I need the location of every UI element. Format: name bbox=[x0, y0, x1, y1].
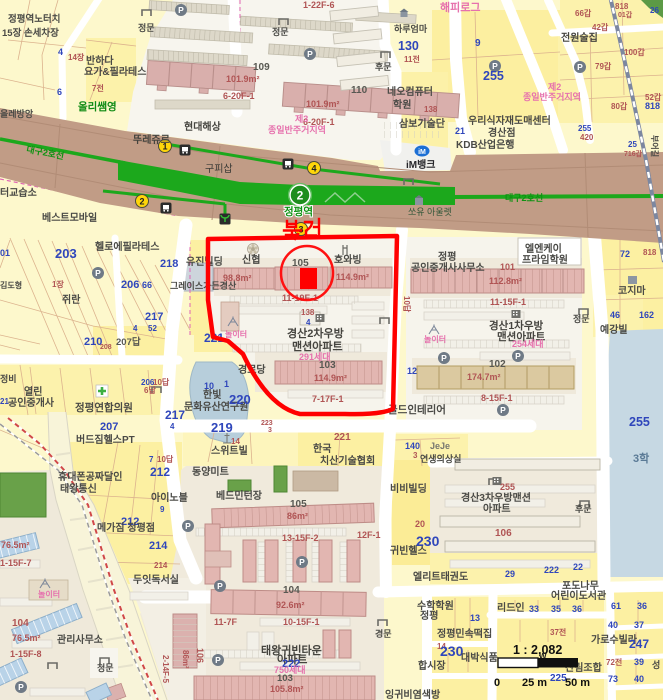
svg-text:20: 20 bbox=[415, 519, 425, 529]
svg-text:223: 223 bbox=[261, 420, 273, 427]
svg-text:214: 214 bbox=[149, 540, 168, 552]
svg-text:86m²: 86m² bbox=[287, 511, 308, 521]
svg-text:218: 218 bbox=[160, 258, 178, 270]
svg-text:105.8m²: 105.8m² bbox=[270, 684, 304, 694]
svg-text:4: 4 bbox=[133, 324, 138, 333]
svg-text:10답: 10답 bbox=[402, 296, 412, 313]
svg-text:관리사무소: 관리사무소 bbox=[57, 633, 103, 646]
svg-text:9: 9 bbox=[475, 38, 481, 49]
svg-text:01: 01 bbox=[0, 248, 10, 258]
svg-text:101: 101 bbox=[500, 262, 515, 272]
svg-text:130: 130 bbox=[398, 39, 419, 53]
svg-text:제3: 제3 bbox=[295, 113, 308, 124]
svg-text:호와빙: 호와빙 bbox=[334, 253, 362, 266]
svg-text:138: 138 bbox=[301, 308, 315, 317]
svg-text:207답: 207답 bbox=[116, 336, 141, 348]
svg-text:iM: iM bbox=[418, 149, 426, 156]
svg-text:207: 207 bbox=[100, 421, 118, 433]
svg-text:10답: 10답 bbox=[157, 454, 174, 464]
svg-text:올레방앙: 올레방앙 bbox=[0, 108, 34, 119]
svg-text:76.5m²: 76.5m² bbox=[12, 633, 41, 643]
svg-text:유진빌딩: 유진빌딩 bbox=[186, 255, 223, 268]
svg-text:174.7m²: 174.7m² bbox=[467, 372, 501, 382]
svg-text:2: 2 bbox=[297, 189, 304, 203]
svg-text:베드민턴장: 베드민턴장 bbox=[216, 489, 263, 502]
svg-text:6: 6 bbox=[57, 87, 62, 97]
svg-text:치산기술협회: 치산기술협회 bbox=[320, 454, 375, 467]
svg-text:2: 2 bbox=[139, 197, 144, 207]
svg-text:26: 26 bbox=[650, 6, 659, 15]
svg-text:102: 102 bbox=[489, 359, 506, 370]
svg-text:종일반주거지역: 종일반주거지역 bbox=[268, 124, 326, 135]
svg-text:하루엄마: 하루엄마 bbox=[394, 23, 428, 34]
svg-text:후문: 후문 bbox=[375, 61, 392, 72]
svg-text:연생의상실: 연생의상실 bbox=[420, 453, 461, 464]
svg-text:P: P bbox=[217, 581, 223, 591]
svg-text:잉귀비염색방: 잉귀비염색방 bbox=[385, 688, 441, 700]
svg-text:쥐란: 쥐란 bbox=[62, 293, 81, 306]
svg-text:214: 214 bbox=[154, 561, 168, 570]
svg-text:한빛: 한빛 bbox=[203, 388, 221, 401]
svg-text:109: 109 bbox=[253, 62, 270, 73]
svg-text:106: 106 bbox=[495, 528, 512, 539]
svg-text:103: 103 bbox=[319, 360, 336, 371]
svg-text:P: P bbox=[577, 62, 583, 72]
svg-text:P: P bbox=[307, 49, 313, 59]
svg-text:140: 140 bbox=[405, 441, 420, 451]
svg-text:1-15F-8: 1-15F-8 bbox=[10, 649, 42, 659]
svg-text:100갑: 100갑 bbox=[624, 47, 645, 57]
svg-text:217: 217 bbox=[165, 408, 185, 422]
svg-text:254세대: 254세대 bbox=[512, 338, 544, 349]
svg-text:818: 818 bbox=[615, 2, 629, 11]
svg-text:베스트모바일: 베스트모바일 bbox=[42, 211, 97, 224]
svg-text:21: 21 bbox=[455, 126, 465, 136]
svg-text:경산점: 경산점 bbox=[488, 126, 516, 139]
svg-text:비비빌딩: 비비빌딩 bbox=[390, 482, 427, 495]
svg-text:33: 33 bbox=[529, 604, 539, 614]
svg-text:정평민속떡집: 정평민속떡집 bbox=[437, 627, 492, 640]
svg-text:어린이도서관: 어린이도서관 bbox=[551, 589, 607, 602]
svg-text:101.9m²: 101.9m² bbox=[306, 99, 340, 109]
svg-text:222: 222 bbox=[544, 565, 559, 575]
svg-text:예강빌: 예강빌 bbox=[600, 323, 628, 336]
svg-text:221: 221 bbox=[334, 432, 351, 443]
svg-text:제2: 제2 bbox=[548, 81, 561, 92]
svg-text:29: 29 bbox=[505, 569, 515, 579]
svg-text:쏘유 아울렛: 쏘유 아울렛 bbox=[408, 207, 452, 217]
svg-text:818: 818 bbox=[645, 101, 660, 111]
svg-text:39: 39 bbox=[634, 657, 644, 667]
svg-text:112.8m²: 112.8m² bbox=[489, 276, 522, 286]
svg-text:420: 420 bbox=[580, 133, 594, 142]
svg-text:휴대폰공짜달인: 휴대폰공짜달인 bbox=[58, 470, 122, 483]
svg-text:현대해상: 현대해상 bbox=[184, 120, 222, 133]
svg-text:3: 3 bbox=[268, 427, 272, 434]
svg-text:14: 14 bbox=[231, 437, 240, 446]
svg-text:터교습소: 터교습소 bbox=[0, 186, 37, 199]
svg-text:1-22F-6: 1-22F-6 bbox=[303, 0, 335, 10]
svg-text:해피로그: 해피로그 bbox=[440, 0, 480, 14]
svg-text:13-15F-2: 13-15F-2 bbox=[282, 533, 319, 543]
svg-text:프라임학원: 프라임학원 bbox=[522, 253, 568, 266]
svg-text:73: 73 bbox=[608, 674, 618, 684]
svg-text:6-20F-1: 6-20F-1 bbox=[223, 91, 255, 101]
svg-text:청문: 청문 bbox=[97, 662, 114, 673]
svg-text:716갑: 716갑 bbox=[624, 149, 643, 158]
svg-text:전원술집: 전원술집 bbox=[561, 31, 598, 44]
svg-text:208: 208 bbox=[100, 344, 112, 351]
svg-text:14장: 14장 bbox=[68, 52, 85, 62]
svg-text:P: P bbox=[441, 353, 447, 363]
svg-text:P: P bbox=[95, 268, 101, 278]
svg-text:46: 46 bbox=[610, 310, 620, 320]
svg-text:11-15F-1: 11-15F-1 bbox=[490, 297, 526, 307]
svg-text:138: 138 bbox=[424, 105, 438, 114]
svg-text:헬로에필라테스: 헬로에필라테스 bbox=[95, 240, 159, 253]
svg-text:818: 818 bbox=[643, 248, 657, 257]
svg-text:11-7F: 11-7F bbox=[214, 617, 238, 627]
svg-text:P: P bbox=[500, 405, 506, 415]
svg-text:247: 247 bbox=[629, 637, 649, 651]
svg-text:11전: 11전 bbox=[404, 54, 420, 64]
svg-text:12F-1: 12F-1 bbox=[357, 530, 381, 540]
svg-text:열린: 열린 bbox=[24, 385, 42, 398]
svg-text:P: P bbox=[185, 521, 191, 531]
svg-text:P: P bbox=[215, 655, 221, 665]
svg-text:76.5m²: 76.5m² bbox=[1, 540, 30, 550]
svg-text:정평: 정평 bbox=[438, 250, 456, 263]
svg-text:신협: 신협 bbox=[242, 253, 260, 266]
svg-text:4: 4 bbox=[306, 318, 311, 327]
svg-text:255: 255 bbox=[483, 69, 504, 83]
svg-text:42갑: 42갑 bbox=[592, 22, 609, 32]
svg-text:21: 21 bbox=[0, 397, 9, 406]
svg-text:1 : 2,082: 1 : 2,082 bbox=[513, 643, 562, 657]
svg-text:골드인테리어: 골드인테리어 bbox=[388, 403, 446, 416]
svg-text:72: 72 bbox=[620, 249, 630, 259]
svg-text:P: P bbox=[299, 557, 305, 567]
svg-text:정평: 정평 bbox=[420, 609, 438, 622]
svg-text:요가&필라테스: 요가&필라테스 bbox=[84, 65, 146, 78]
svg-text:리드인: 리드인 bbox=[497, 601, 525, 614]
svg-text:태왕통신: 태왕통신 bbox=[60, 482, 97, 495]
svg-text:114.9m²: 114.9m² bbox=[314, 373, 347, 383]
svg-text:61: 61 bbox=[611, 601, 621, 611]
svg-text:엘리트태권도: 엘리트태권도 bbox=[413, 570, 468, 583]
svg-text:52: 52 bbox=[148, 324, 157, 333]
svg-text:학원: 학원 bbox=[393, 98, 411, 111]
svg-text:한국: 한국 bbox=[313, 443, 331, 455]
svg-text:104: 104 bbox=[12, 618, 29, 629]
svg-text:98.8m²: 98.8m² bbox=[223, 273, 252, 283]
svg-text:114.9m²: 114.9m² bbox=[336, 272, 369, 282]
svg-text:정평연합의원: 정평연합의원 bbox=[75, 401, 133, 414]
svg-text:7전: 7전 bbox=[92, 83, 104, 93]
svg-text:106: 106 bbox=[195, 648, 205, 663]
svg-text:37: 37 bbox=[634, 620, 644, 630]
svg-text:공인중개사: 공인중개사 bbox=[8, 396, 55, 409]
svg-text:105: 105 bbox=[290, 499, 307, 510]
svg-text:메가짐 정평점: 메가짐 정평점 bbox=[97, 521, 155, 534]
svg-text:P: P bbox=[18, 682, 24, 692]
svg-text:공인중개사사무소: 공인중개사사무소 bbox=[411, 261, 485, 274]
svg-text:대구2호선: 대구2호선 bbox=[505, 192, 543, 203]
svg-text:36: 36 bbox=[572, 604, 582, 614]
svg-text:162: 162 bbox=[639, 310, 654, 320]
svg-text:P: P bbox=[515, 351, 521, 361]
svg-text:정평역노터치: 정평역노터치 bbox=[8, 13, 60, 25]
svg-text:스위트빌: 스위트빌 bbox=[211, 444, 248, 457]
svg-text:13: 13 bbox=[470, 613, 480, 623]
svg-text:8-15F-1: 8-15F-1 bbox=[481, 393, 513, 403]
svg-text:220: 220 bbox=[229, 392, 251, 407]
svg-text:255: 255 bbox=[500, 482, 515, 492]
svg-text:삼보기술단: 삼보기술단 bbox=[399, 117, 446, 130]
svg-text:부어길: 부어길 bbox=[650, 135, 660, 157]
svg-text:정문: 정문 bbox=[138, 22, 155, 33]
svg-text:40: 40 bbox=[608, 620, 618, 630]
svg-text:80갑: 80갑 bbox=[611, 101, 628, 111]
svg-text:105: 105 bbox=[292, 258, 309, 269]
svg-text:경산2차우방: 경산2차우방 bbox=[287, 326, 344, 340]
svg-text:40: 40 bbox=[634, 674, 644, 684]
svg-text:01갑: 01갑 bbox=[618, 10, 633, 19]
svg-text:35: 35 bbox=[551, 604, 561, 614]
svg-text:7: 7 bbox=[149, 455, 154, 464]
svg-text:203: 203 bbox=[55, 246, 77, 261]
svg-text:정문: 정문 bbox=[573, 313, 590, 324]
svg-text:구피삽: 구피삽 bbox=[205, 163, 233, 175]
svg-text:성: 성 bbox=[652, 659, 660, 670]
svg-text:212: 212 bbox=[150, 465, 170, 479]
svg-text:10-15F-1: 10-15F-1 bbox=[283, 617, 320, 627]
svg-text:맨션아파트: 맨션아파트 bbox=[292, 339, 343, 353]
svg-text:103: 103 bbox=[277, 673, 293, 684]
svg-text:4: 4 bbox=[170, 422, 175, 431]
svg-text:JeJe: JeJe bbox=[430, 441, 450, 451]
svg-text:217: 217 bbox=[145, 311, 163, 323]
svg-text:동양미트: 동양미트 bbox=[192, 465, 229, 478]
svg-text:15장 손세차장: 15장 손세차장 bbox=[2, 27, 59, 39]
svg-text:101.9m²: 101.9m² bbox=[226, 74, 260, 84]
svg-text:110: 110 bbox=[351, 85, 368, 96]
svg-text:219: 219 bbox=[211, 420, 233, 435]
svg-text:iM뱅크: iM뱅크 bbox=[406, 158, 436, 171]
svg-text:4: 4 bbox=[58, 47, 63, 57]
svg-text:1-15F-7: 1-15F-7 bbox=[0, 558, 32, 568]
svg-text:김도형: 김도형 bbox=[0, 280, 22, 290]
svg-text:뚜레쥬르: 뚜레쥬르 bbox=[133, 133, 170, 146]
svg-text:255: 255 bbox=[578, 124, 592, 133]
svg-text:0: 0 bbox=[494, 677, 500, 689]
svg-text:25: 25 bbox=[628, 140, 637, 149]
svg-text:7-17F-1: 7-17F-1 bbox=[312, 394, 344, 404]
svg-text:반하다: 반하다 bbox=[86, 54, 114, 67]
svg-text:대박식품: 대박식품 bbox=[461, 651, 498, 664]
svg-text:후문: 후문 bbox=[575, 503, 592, 514]
svg-text:9: 9 bbox=[160, 505, 165, 514]
svg-text:25 m: 25 m bbox=[522, 677, 547, 689]
svg-text:종일반주거지역: 종일반주거지역 bbox=[523, 91, 581, 102]
svg-text:86m²: 86m² bbox=[181, 650, 190, 669]
svg-text:3학: 3학 bbox=[633, 451, 649, 465]
svg-text:놀이터: 놀이터 bbox=[38, 589, 60, 599]
svg-text:6답: 6답 bbox=[144, 385, 156, 395]
svg-text:50 m: 50 m bbox=[565, 677, 590, 689]
svg-text:22: 22 bbox=[573, 562, 583, 572]
svg-text:66갑: 66갑 bbox=[575, 8, 592, 18]
svg-text:경산3차우방맨션: 경산3차우방맨션 bbox=[461, 491, 531, 504]
svg-text:P: P bbox=[178, 5, 184, 15]
svg-text:아이노블: 아이노블 bbox=[151, 491, 188, 504]
svg-text:66: 66 bbox=[142, 280, 152, 290]
svg-text:아파트: 아파트 bbox=[483, 502, 511, 515]
svg-text:206: 206 bbox=[121, 279, 139, 291]
svg-text:정비: 정비 bbox=[0, 373, 17, 384]
svg-text:우리식자재도매센터: 우리식자재도매센터 bbox=[468, 114, 551, 127]
svg-text:12: 12 bbox=[407, 366, 417, 376]
svg-text:코지마: 코지마 bbox=[618, 284, 646, 297]
svg-text:정문: 정문 bbox=[272, 26, 289, 37]
svg-text:36: 36 bbox=[637, 601, 647, 611]
svg-text:1장: 1장 bbox=[52, 279, 64, 289]
svg-text:엘엔케이: 엘엔케이 bbox=[525, 242, 562, 255]
svg-text:정평역: 정평역 bbox=[284, 205, 313, 218]
svg-text:귀빈헬스: 귀빈헬스 bbox=[390, 544, 427, 557]
svg-text:놀이터: 놀이터 bbox=[225, 329, 247, 339]
svg-text:72전: 72전 bbox=[606, 657, 622, 667]
svg-text:4: 4 bbox=[311, 164, 316, 174]
svg-text:2-14F-5: 2-14F-5 bbox=[161, 655, 170, 684]
svg-text:3: 3 bbox=[413, 451, 418, 460]
svg-text:올리쌤영: 올리쌤영 bbox=[78, 100, 117, 113]
svg-text:네오컴퓨터: 네오컴퓨터 bbox=[387, 85, 433, 98]
svg-text:92.6m²: 92.6m² bbox=[276, 600, 305, 610]
svg-text:버드짐헬스PT: 버드짐헬스PT bbox=[76, 433, 135, 446]
svg-text:KDB산업은행: KDB산업은행 bbox=[456, 138, 514, 151]
svg-text:놀이터: 놀이터 bbox=[424, 334, 446, 344]
svg-text:합시장: 합시장 bbox=[418, 659, 446, 672]
svg-text:255: 255 bbox=[629, 415, 650, 429]
svg-text:경문: 경문 bbox=[375, 628, 392, 639]
svg-text:1: 1 bbox=[224, 379, 229, 389]
svg-text:104: 104 bbox=[283, 585, 300, 596]
svg-text:37전: 37전 bbox=[550, 627, 566, 637]
svg-text:두잇독서실: 두잇독서실 bbox=[133, 573, 179, 586]
svg-text:79갑: 79갑 bbox=[595, 61, 612, 71]
